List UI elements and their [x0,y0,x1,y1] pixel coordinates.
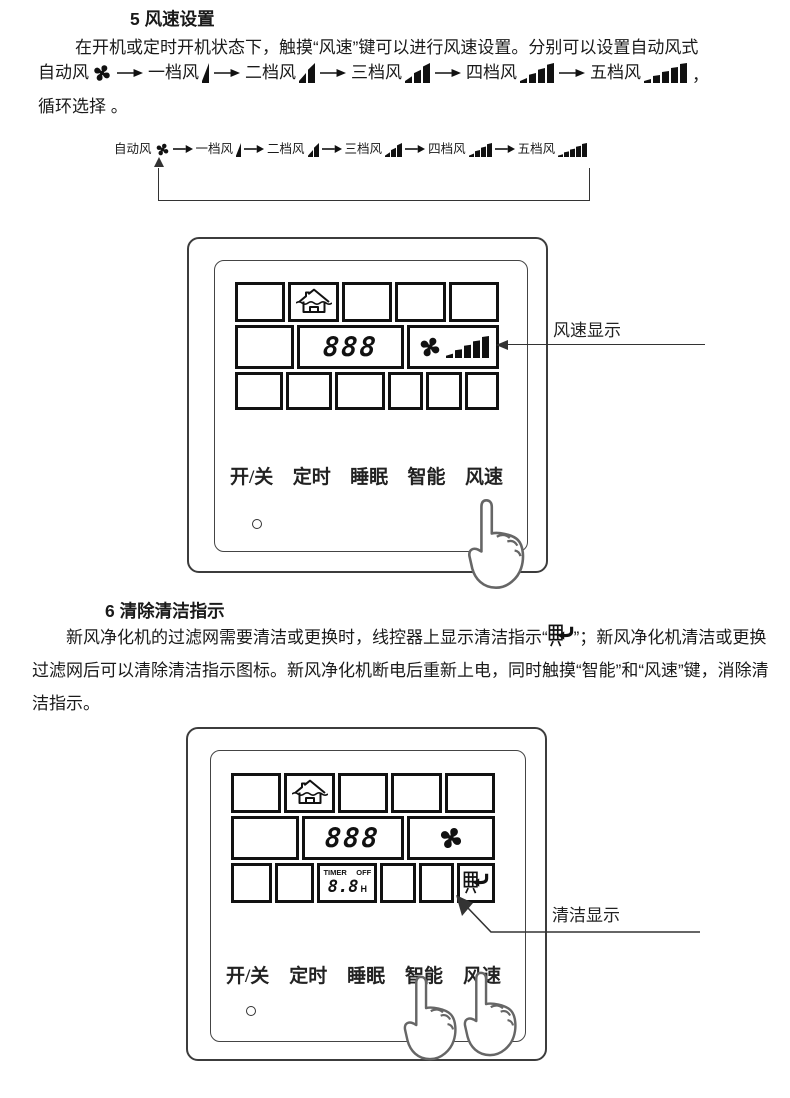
fan-speed-display-label: 风速显示 [553,316,621,341]
pointing-hand-icon [462,496,530,592]
house-ventilation-icon [284,773,334,813]
speed-step-label: 四档风 [428,142,466,157]
speed-step-2: 二档风 [267,142,319,157]
panel-key-0[interactable]: 开/关 [230,462,273,489]
fan-speed-bars-icon [446,336,489,358]
section6-text-before-icon: 新风净化机的过滤网需要清洁或更换时，线控器上显示清洁指示“ [66,628,548,647]
arrow-right-icon [435,68,461,78]
arrow-right-icon [559,68,585,78]
speed-bars-2-icon [299,63,315,83]
speed-step-label: 一档风 [148,63,199,83]
speed-step-label: 二档风 [245,63,296,83]
fan-icon [438,825,464,851]
sequence-loop-connector [158,168,590,201]
lcd-cell-blank [391,773,441,813]
speed-step-4: 四档风 [466,63,554,83]
section5-paragraph-line3: 循环选择 。 [38,92,128,117]
sequence-tail-punctuation: ， [692,61,709,86]
speed-step-5: 五档风 [518,142,588,157]
pointing-hand-icon [458,968,522,1060]
lcd-cell-blank [231,816,299,860]
speed-step-3: 三档风 [345,142,403,157]
annotation-arrow-icon [496,340,508,350]
speed-step-3: 三档风 [351,63,430,83]
panel-key-3[interactable]: 智能 [408,462,446,489]
panel1-touch-keys: 开/关定时睡眠智能风速 [230,461,503,489]
speed-step-label: 一档风 [196,142,234,157]
fan-speed-sequence-inline: 自动风一档风二档风三档风四档风五档风， [38,58,709,88]
speed-bars-3-icon [385,143,402,157]
indicator-dot [246,1006,256,1016]
lcd-cell-blank [335,372,385,410]
annotation-leader-line [508,344,705,345]
lcd-temperature-display: 888 [297,325,404,369]
timer-display-cell: TIMER OFF 8.8 H [317,863,377,903]
fan-display-cell [407,816,495,860]
speed-step-label: 自动风 [38,63,89,83]
lcd-cell-blank [388,372,424,410]
speed-step-5: 五档风 [590,63,687,83]
arrow-right-icon [495,144,515,154]
arrow-right-icon [405,144,425,154]
lcd-cell-blank [235,325,294,369]
lcd-cell-blank [338,773,388,813]
panel-key-0[interactable]: 开/关 [226,961,269,988]
timer-label: TIMER [323,868,346,877]
fan-icon [418,335,442,359]
lcd-cell-blank [380,863,416,903]
speed-bars-1-icon [202,63,209,83]
speed-step-label: 三档风 [345,142,383,157]
speed-bars-3-icon [405,63,430,83]
section5-heading: 5 风速设置 [130,6,215,31]
fan-speed-sequence-diagram: 自动风一档风二档风三档风四档风五档风 [114,136,587,162]
clean-filter-icon [548,624,574,648]
arrow-right-icon [117,68,143,78]
timer-off-label: OFF [356,868,371,877]
speed-bars-5-icon [558,143,587,157]
timer-value: 8.8 [328,877,359,897]
section5-paragraph-line1: 在开机或定时开机状态下，触摸“风速”键可以进行风速设置。分别可以设置自动风式 [75,33,698,58]
lcd-temperature-display: 888 [302,816,404,860]
arrow-right-icon [244,144,264,154]
lcd-cell-blank [235,282,285,322]
speed-step-label: 五档风 [518,142,556,157]
arrow-right-icon [173,144,193,154]
speed-bars-4-icon [520,63,554,83]
panel-key-2[interactable]: 睡眠 [350,462,388,489]
panel-key-4[interactable]: 风速 [465,462,503,489]
speed-step-label: 五档风 [590,63,641,83]
fan-icon [92,63,112,83]
speed-step-0: 自动风 [38,63,112,83]
speed-step-4: 四档风 [428,142,492,157]
lcd-cell-blank [231,773,281,813]
speed-bars-5-icon [644,63,687,83]
speed-step-1: 一档风 [148,63,209,83]
arrow-right-icon [322,144,342,154]
lcd-cell-blank [231,863,272,903]
lcd-cell-blank [465,372,499,410]
speed-step-label: 三档风 [351,63,402,83]
speed-step-label: 自动风 [114,142,152,157]
timer-unit: H [360,884,367,894]
lcd-cell-blank [275,863,314,903]
panel-key-1[interactable]: 定时 [289,961,327,988]
pointing-hand-icon [398,972,462,1064]
speed-step-label: 二档风 [267,142,305,157]
arrow-right-icon [214,68,240,78]
section6-paragraph: 新风净化机的过滤网需要清洁或更换时，线控器上显示清洁指示“”；新风净化机清洁或更… [32,621,774,720]
lcd-cell-blank [395,282,445,322]
speed-bars-4-icon [469,143,492,157]
panel1-lcd: 888 [235,282,499,410]
lcd-cell-blank [235,372,283,410]
section6-heading: 6 清除清洁指示 [105,598,225,623]
panel-key-2[interactable]: 睡眠 [347,961,385,988]
lcd-cell-blank [449,282,499,322]
annotation-leader-polyline [445,892,705,938]
speed-step-0: 自动风 [114,142,170,157]
house-ventilation-icon [288,282,338,322]
lcd-cell-blank [426,372,462,410]
annotation-arrow-icon [456,895,473,916]
panel-key-1[interactable]: 定时 [293,462,331,489]
speed-step-2: 二档风 [245,63,315,83]
speed-bars-2-icon [308,143,319,157]
speed-step-label: 四档风 [466,63,517,83]
indicator-dot [252,519,262,529]
manual-page: 5 风速设置 在开机或定时开机状态下，触摸“风速”键可以进行风速设置。分别可以设… [0,0,790,1098]
loop-up-arrow-icon [154,157,164,167]
panel2-lcd: 888 TIMER OFF 8.8 [231,773,495,903]
lcd-cell-blank [286,372,332,410]
arrow-right-icon [320,68,346,78]
lcd-cell-blank [342,282,392,322]
speed-step-1: 一档风 [196,142,242,157]
fan-speed-display-cell [407,325,499,369]
fan-icon [155,142,170,157]
speed-bars-1-icon [236,143,241,157]
lcd-cell-blank [445,773,495,813]
